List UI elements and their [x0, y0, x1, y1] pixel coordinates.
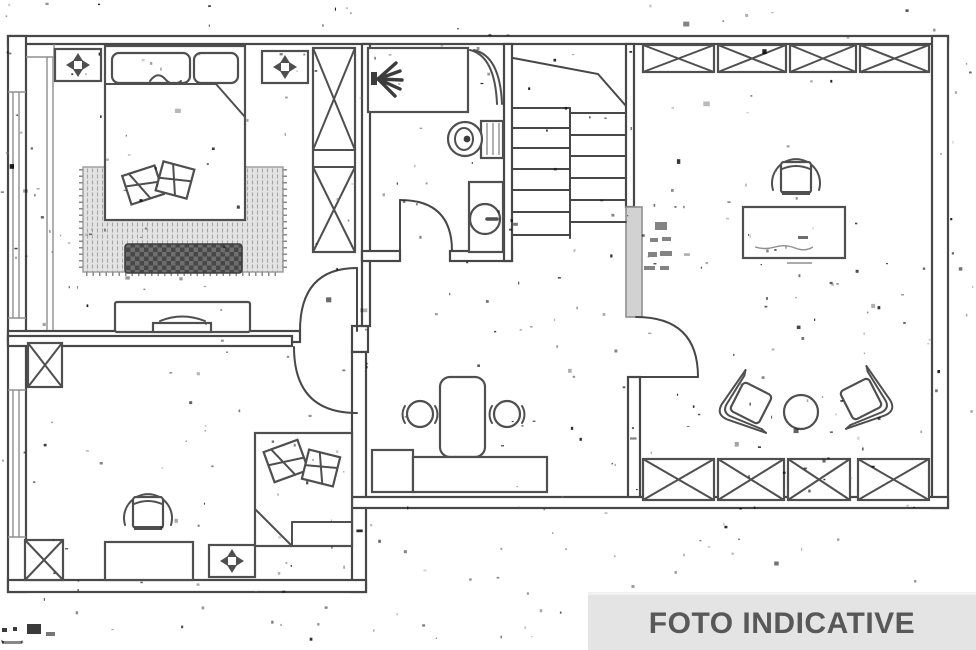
- armchair: [710, 365, 783, 445]
- glazed-partition: [626, 207, 642, 317]
- ceiling-light-icon: [55, 49, 101, 81]
- throw-pillow: [156, 161, 195, 198]
- wardrobe-strip-bottom: [643, 459, 929, 500]
- round-table: [784, 395, 818, 429]
- counter: [372, 450, 547, 492]
- staircase: [512, 58, 626, 238]
- door-bathroom: [400, 200, 452, 251]
- door-living-room: [636, 317, 698, 377]
- double-bed: [105, 46, 245, 220]
- foto-indicative-banner: FOTO INDICATIVE: [588, 592, 976, 650]
- scan-artifact-marks: [2, 624, 55, 644]
- storage-box: [25, 540, 63, 580]
- living-room: [643, 45, 929, 500]
- dining-table: [440, 377, 485, 457]
- desk-chair: [124, 494, 172, 528]
- shower-screen: [474, 50, 502, 104]
- desk: [743, 207, 845, 263]
- stool: [403, 401, 438, 427]
- door-bedroom-2: [294, 347, 357, 413]
- desk: [105, 542, 193, 580]
- pillow: [302, 450, 340, 487]
- pillow: [194, 53, 238, 83]
- wardrobe-strip-top: [643, 45, 929, 72]
- foto-indicative-label: FOTO INDICATIVE: [649, 607, 915, 641]
- stair-break-line: [513, 58, 626, 106]
- armchair: [829, 361, 902, 441]
- stool: [490, 401, 525, 427]
- window-bedroom-1: [8, 92, 26, 318]
- floor-plan-image: FOTO INDICATIVE: [0, 0, 976, 650]
- windows: [8, 92, 26, 537]
- bedroom-1: [47, 46, 355, 332]
- storage-box: [28, 343, 62, 387]
- window-bedroom-2: [8, 390, 26, 537]
- bedroom-2: [25, 343, 352, 580]
- dresser: [115, 302, 250, 332]
- ceiling-light-icon: [262, 51, 308, 83]
- bench: [125, 244, 242, 273]
- single-bed: [255, 433, 352, 546]
- ceiling-light-icon: [209, 545, 255, 577]
- toilet: [448, 121, 503, 158]
- stair-annotation-marks: [644, 222, 672, 270]
- desk-chair: [772, 159, 820, 193]
- bathroom: [368, 48, 503, 252]
- washbasin: [469, 182, 503, 252]
